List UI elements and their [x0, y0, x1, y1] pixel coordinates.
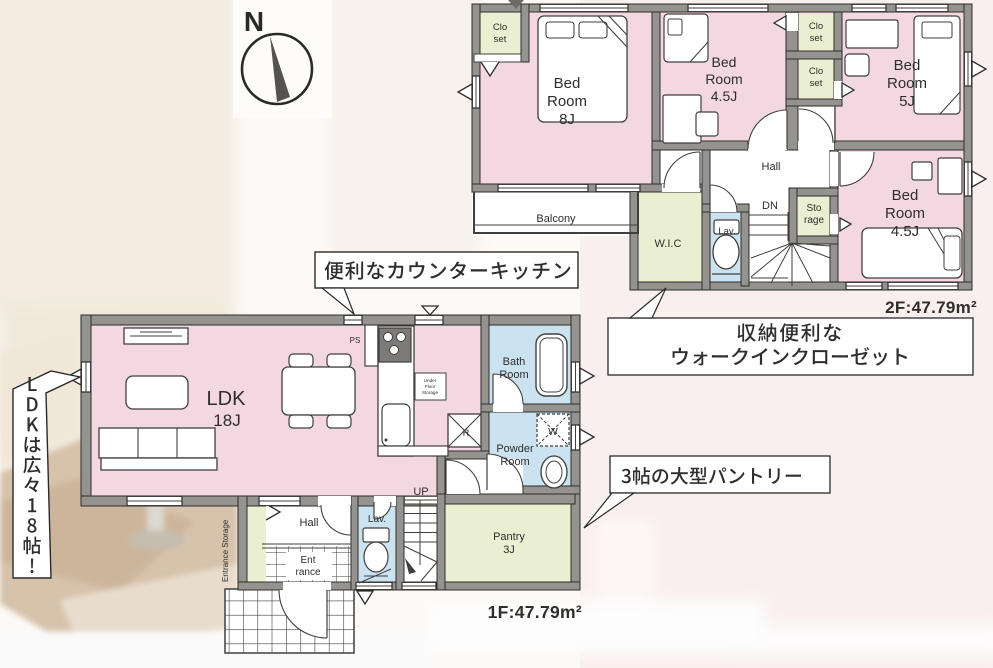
svg-text:PS: PS — [350, 336, 361, 345]
svg-text:set: set — [810, 78, 823, 89]
svg-text:Ent: Ent — [300, 555, 315, 566]
svg-text:2F:47.79m²: 2F:47.79m² — [885, 298, 977, 317]
svg-text:Room: Room — [887, 75, 927, 92]
svg-text:3J: 3J — [503, 544, 515, 556]
svg-text:Hall: Hall — [762, 161, 781, 173]
svg-text:set: set — [810, 33, 823, 44]
svg-text:Room: Room — [547, 93, 587, 110]
svg-text:Lav.: Lav. — [368, 514, 386, 525]
svg-text:Room: Room — [705, 71, 742, 87]
svg-text:Pantry: Pantry — [493, 531, 525, 543]
svg-text:Room: Room — [499, 369, 528, 381]
svg-text:1F:47.79m²: 1F:47.79m² — [488, 602, 582, 622]
svg-text:Under: Under — [424, 378, 437, 383]
svg-text:N: N — [244, 6, 264, 37]
svg-text:Hall: Hall — [300, 517, 319, 529]
svg-text:Powder: Powder — [496, 443, 534, 455]
svg-text:Storage: Storage — [422, 390, 439, 395]
svg-text:Clo: Clo — [493, 22, 507, 33]
svg-text:8J: 8J — [559, 111, 575, 128]
svg-text:5J: 5J — [899, 93, 915, 110]
svg-text:rage: rage — [804, 215, 824, 226]
svg-text:Balcony: Balcony — [536, 213, 576, 225]
svg-text:R: R — [463, 428, 470, 438]
svg-text:W: W — [548, 427, 558, 438]
svg-text:Bath: Bath — [503, 356, 526, 368]
svg-text:set: set — [494, 34, 507, 45]
svg-text:Sto: Sto — [806, 203, 821, 214]
svg-text:Lav.: Lav. — [718, 226, 735, 237]
svg-text:Clo: Clo — [809, 66, 823, 77]
svg-text:4.5J: 4.5J — [711, 88, 737, 104]
svg-text:W.I.C: W.I.C — [655, 238, 682, 250]
svg-text:LDK: LDK — [207, 388, 247, 410]
svg-text:Entrance Storage: Entrance Storage — [221, 519, 230, 582]
svg-text:Bed: Bed — [892, 187, 919, 204]
svg-text:Bed: Bed — [554, 75, 581, 92]
svg-text:Bed: Bed — [712, 54, 737, 70]
svg-text:Floor: Floor — [425, 384, 436, 389]
svg-text:Bed: Bed — [894, 57, 921, 74]
svg-text:rance: rance — [295, 567, 320, 578]
svg-text:Clo: Clo — [809, 21, 823, 32]
svg-text:DN: DN — [762, 200, 778, 212]
svg-text:UP: UP — [413, 486, 428, 498]
svg-text:18J: 18J — [213, 411, 240, 430]
svg-text:4.5J: 4.5J — [891, 223, 919, 240]
svg-text:Room: Room — [500, 456, 529, 468]
svg-text:Room: Room — [885, 205, 925, 222]
